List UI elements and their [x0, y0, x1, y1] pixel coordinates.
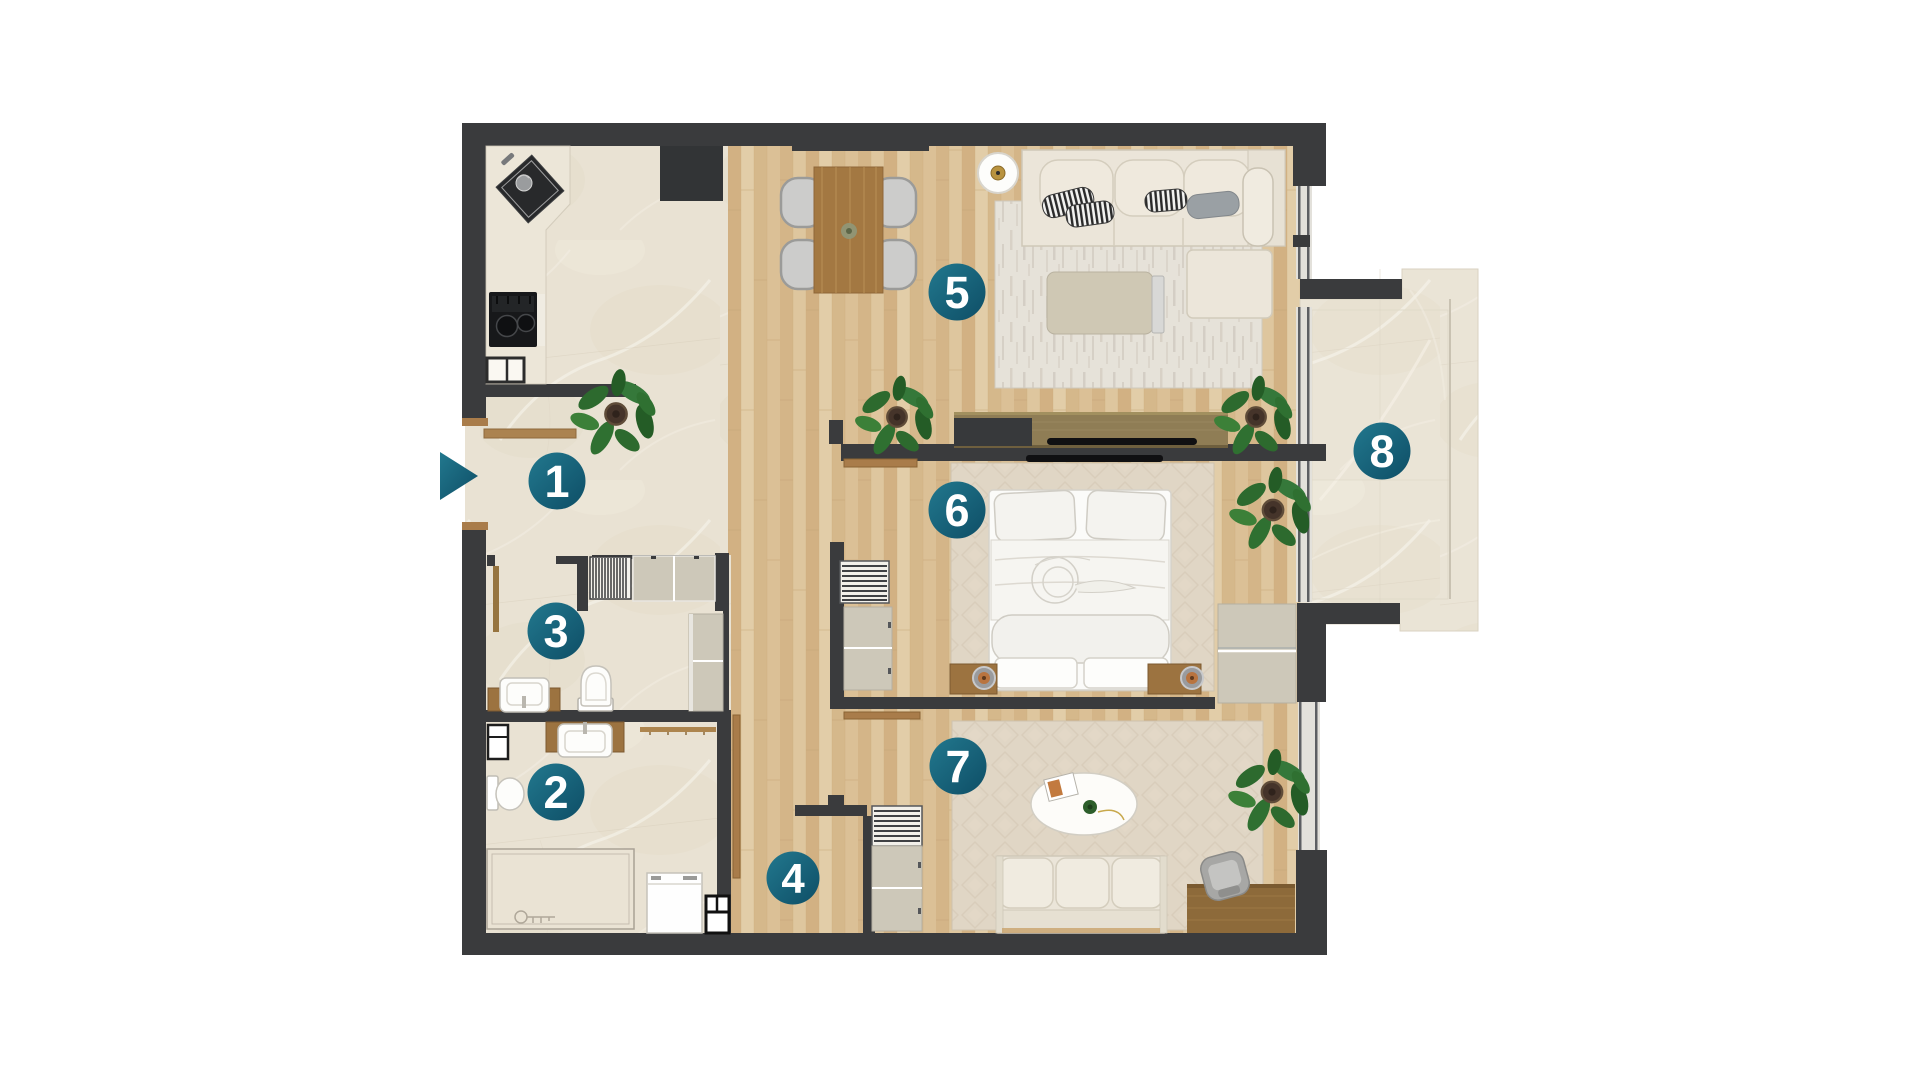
svg-text:4: 4 [781, 855, 805, 902]
svg-text:1: 1 [544, 456, 569, 507]
svg-text:2: 2 [543, 767, 568, 818]
svg-text:8: 8 [1369, 426, 1394, 477]
svg-text:6: 6 [944, 485, 969, 536]
svg-text:5: 5 [944, 267, 969, 318]
svg-text:3: 3 [543, 606, 568, 657]
svg-text:7: 7 [945, 741, 970, 792]
